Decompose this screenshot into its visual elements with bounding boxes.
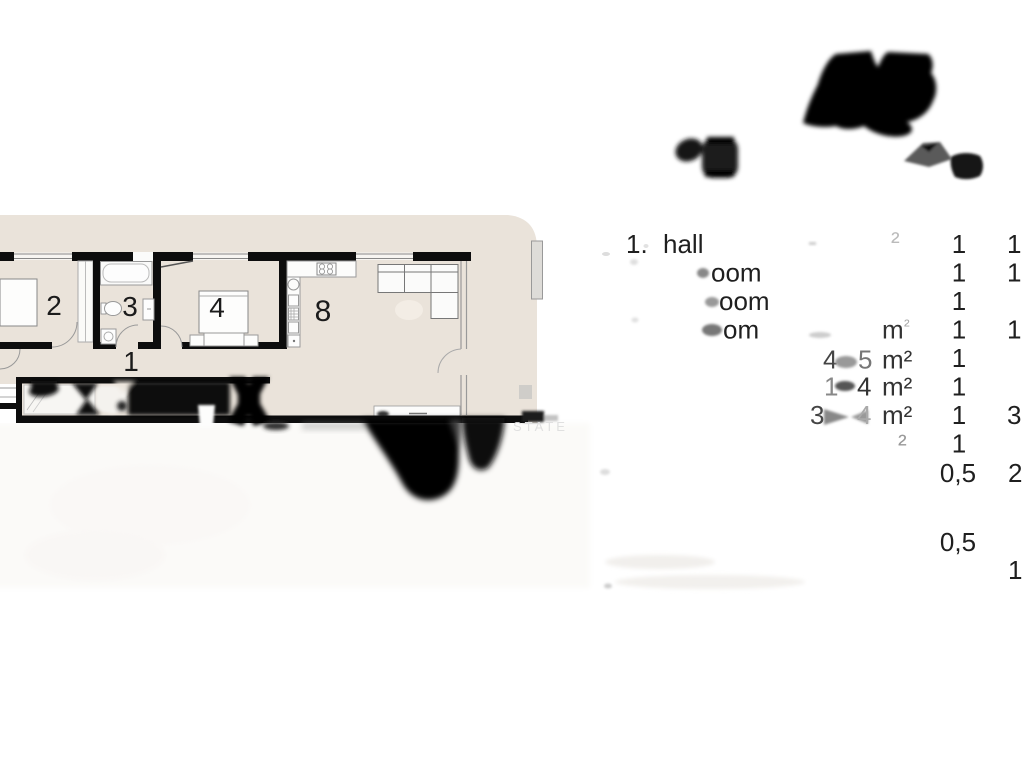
svg-text:3: 3 bbox=[1007, 400, 1021, 430]
svg-text:0,5: 0,5 bbox=[940, 527, 976, 557]
svg-text:1: 1 bbox=[952, 286, 966, 316]
svg-text:4: 4 bbox=[209, 292, 225, 323]
svg-text:1: 1 bbox=[952, 372, 966, 402]
svg-text:²: ² bbox=[891, 226, 900, 256]
svg-text:1: 1 bbox=[1007, 229, 1021, 259]
svg-text:hall: hall bbox=[663, 229, 703, 259]
svg-text:²: ² bbox=[898, 429, 907, 459]
svg-text:1: 1 bbox=[952, 429, 966, 459]
svg-text:m²: m² bbox=[882, 400, 913, 430]
svg-text:STATE: STATE bbox=[513, 419, 568, 434]
svg-text:1: 1 bbox=[952, 229, 966, 259]
svg-text:5: 5 bbox=[858, 345, 872, 375]
svg-text:²: ² bbox=[904, 316, 910, 335]
svg-text:2: 2 bbox=[46, 290, 62, 321]
svg-text:1.: 1. bbox=[626, 229, 648, 259]
svg-text:2: 2 bbox=[1008, 458, 1022, 488]
svg-text:m²: m² bbox=[882, 372, 913, 402]
svg-text:0,5: 0,5 bbox=[940, 458, 976, 488]
svg-text:4: 4 bbox=[857, 400, 871, 430]
svg-text:m: m bbox=[882, 315, 904, 345]
svg-text:1: 1 bbox=[952, 400, 966, 430]
svg-text:4: 4 bbox=[857, 372, 871, 402]
svg-text:3: 3 bbox=[122, 291, 138, 322]
svg-text:1: 1 bbox=[1008, 555, 1022, 585]
svg-text:om: om bbox=[723, 315, 759, 345]
svg-text:1: 1 bbox=[952, 315, 966, 345]
svg-text:oom: oom bbox=[711, 258, 762, 288]
svg-text:1: 1 bbox=[952, 343, 966, 373]
svg-text:m²: m² bbox=[882, 345, 913, 375]
svg-text:1: 1 bbox=[1007, 258, 1021, 288]
svg-text:oom: oom bbox=[719, 286, 770, 316]
svg-text:8: 8 bbox=[315, 295, 332, 328]
svg-text:1: 1 bbox=[123, 346, 139, 377]
svg-text:1: 1 bbox=[952, 258, 966, 288]
svg-text:4: 4 bbox=[823, 345, 837, 375]
svg-text:3: 3 bbox=[810, 400, 824, 430]
svg-text:1: 1 bbox=[1007, 315, 1021, 345]
